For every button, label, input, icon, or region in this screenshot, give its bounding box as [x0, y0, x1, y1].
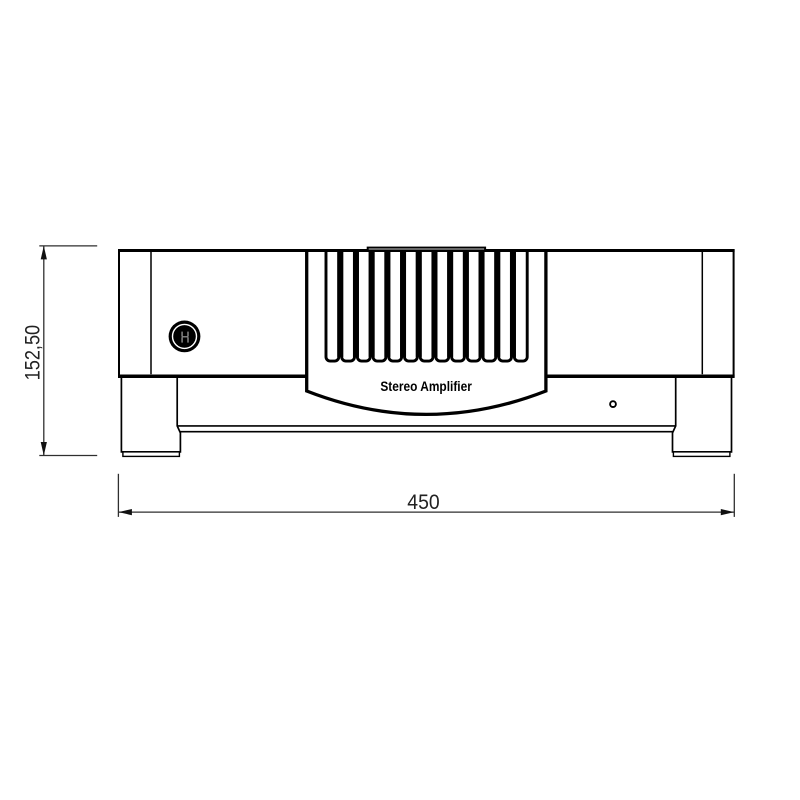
svg-text:152,50: 152,50: [22, 325, 45, 381]
svg-text:450: 450: [407, 491, 439, 514]
svg-text:Stereo Amplifier: Stereo Amplifier: [380, 378, 472, 394]
